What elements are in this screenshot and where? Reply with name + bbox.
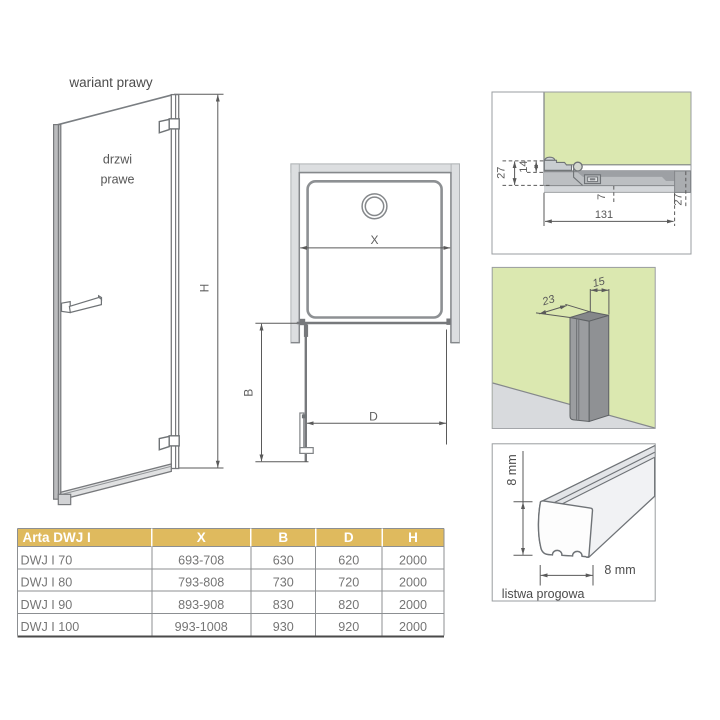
svg-text:14: 14 [518,160,530,172]
svg-text:8 mm: 8 mm [604,563,635,577]
svg-text:693-708: 693-708 [178,553,224,567]
svg-text:wariant prawy: wariant prawy [68,75,153,90]
svg-text:DWJ I 80: DWJ I 80 [21,576,73,590]
svg-text:B: B [241,389,255,397]
svg-text:2000: 2000 [399,553,427,567]
svg-text:X: X [370,233,378,247]
svg-text:H: H [198,284,212,293]
svg-text:X: X [197,530,206,545]
svg-text:prawe: prawe [100,173,134,187]
svg-text:listwa progowa: listwa progowa [502,587,585,601]
svg-text:131: 131 [595,209,613,221]
svg-text:drzwi: drzwi [103,153,132,167]
svg-text:B: B [278,530,288,545]
svg-text:DWJ I 90: DWJ I 90 [21,598,73,612]
svg-text:920: 920 [338,620,359,634]
svg-text:730: 730 [273,576,294,590]
svg-text:DWJ I 70: DWJ I 70 [21,553,73,567]
svg-text:D: D [344,530,354,545]
svg-text:27: 27 [672,193,684,205]
svg-text:620: 620 [338,553,359,567]
svg-text:H: H [408,530,418,545]
svg-text:2000: 2000 [399,620,427,634]
svg-text:630: 630 [273,553,294,567]
svg-text:793-808: 793-808 [178,576,224,590]
svg-text:720: 720 [338,576,359,590]
svg-text:2000: 2000 [399,576,427,590]
svg-text:Arta DWJ I: Arta DWJ I [23,530,91,545]
svg-text:DWJ I 100: DWJ I 100 [21,620,80,634]
svg-text:8 mm: 8 mm [505,454,519,485]
svg-text:820: 820 [338,598,359,612]
svg-text:27: 27 [495,167,507,179]
svg-text:993-1008: 993-1008 [175,620,228,634]
svg-text:D: D [369,409,378,423]
svg-text:830: 830 [273,598,294,612]
svg-text:7: 7 [596,194,608,200]
svg-text:930: 930 [273,620,294,634]
svg-text:893-908: 893-908 [178,598,224,612]
svg-text:2000: 2000 [399,598,427,612]
